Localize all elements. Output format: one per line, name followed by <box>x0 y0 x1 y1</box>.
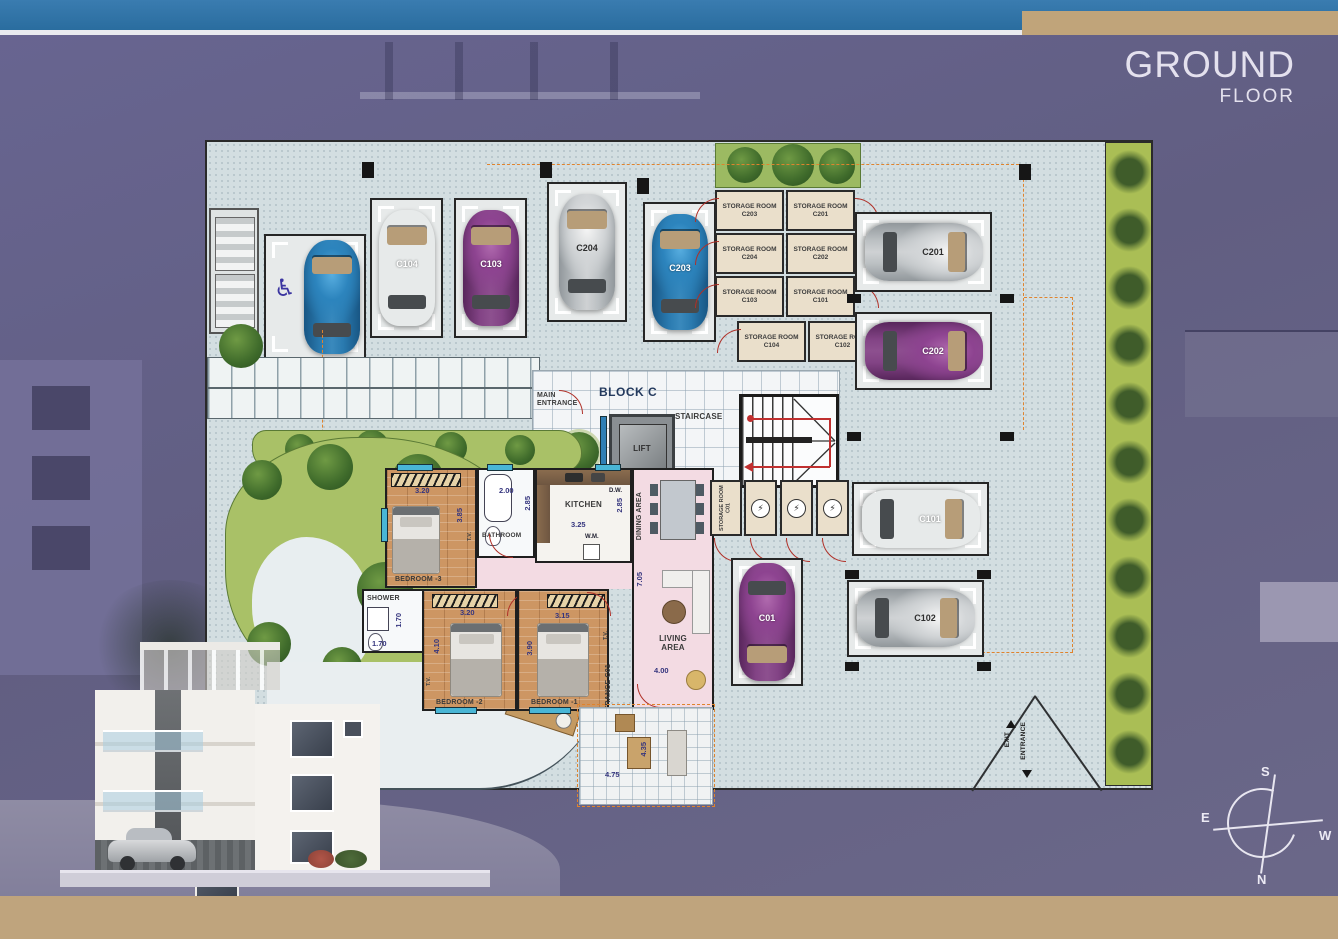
parked-car <box>108 828 196 872</box>
window-dark <box>290 774 334 812</box>
room-label: DINING AREA <box>636 492 650 540</box>
handicap-icon: ♿ <box>274 274 296 303</box>
bg-pergola-post <box>385 42 393 100</box>
staircase-label: STAIRCASE <box>675 412 722 421</box>
bg-pergola-post <box>455 42 463 100</box>
closet <box>391 473 461 487</box>
stove <box>591 473 605 482</box>
chair <box>696 503 704 515</box>
car-c102: C102 <box>857 589 975 647</box>
tree <box>307 444 353 490</box>
car-accessible <box>304 240 360 354</box>
dim-label: 3.20 <box>415 486 430 495</box>
electric-icon: ⚡ <box>751 499 770 518</box>
lift-label: LIFT <box>612 444 672 453</box>
room-label: KITCHEN <box>565 500 602 509</box>
penthouse-pergola <box>140 642 280 650</box>
garden-strip-right <box>1105 142 1152 786</box>
bg-window <box>32 386 90 430</box>
boundary-dashed <box>1072 297 1073 652</box>
outdoor-sofa <box>667 730 687 776</box>
bg-pergola-post <box>610 42 618 100</box>
bottom-tan-bar <box>0 896 1338 939</box>
tree <box>219 324 263 368</box>
penthouse-deck <box>140 650 280 690</box>
compass-n: N <box>1257 872 1266 887</box>
exit-label: EXIT <box>1004 732 1011 747</box>
car-c101: C101 <box>862 490 980 548</box>
compass-s: S <box>1261 764 1270 779</box>
chair <box>696 484 704 496</box>
wall-jamb <box>362 162 374 178</box>
dining-table <box>660 480 696 540</box>
electric-icon: ⚡ <box>787 499 806 518</box>
boundary-dashed <box>1024 297 1073 298</box>
bed <box>537 623 589 697</box>
red-bush <box>308 850 334 868</box>
room-label: LIVING AREA <box>648 634 698 652</box>
wall-jamb <box>845 570 859 579</box>
window <box>595 464 621 471</box>
kitchen-counter <box>537 470 630 485</box>
floor-subtitle: FLOOR <box>1035 86 1295 108</box>
car-wheel <box>170 856 185 871</box>
balcony-glass <box>103 730 203 752</box>
compass: S E W N <box>1205 772 1335 887</box>
electric-meter-room: ⚡ <box>780 480 813 536</box>
bed <box>392 506 440 574</box>
tree <box>505 435 535 465</box>
stair-path <box>750 418 830 420</box>
dim-label: 2.85 <box>615 498 624 513</box>
walkway <box>207 357 540 388</box>
stair-path <box>829 418 831 467</box>
dining-area: DINING AREA <box>634 470 712 562</box>
storage-room-c01: STORAGE ROOM C01 <box>710 480 742 536</box>
facade-panel <box>155 690 181 840</box>
kitchen-counter <box>537 485 550 543</box>
bin <box>215 274 255 328</box>
exit-arrow-icon <box>1006 720 1016 728</box>
washing-machine <box>583 544 600 560</box>
dim-label: 2.85 <box>523 496 532 511</box>
stair-path-dot <box>747 415 754 422</box>
wall-jamb <box>977 662 991 671</box>
window <box>397 464 433 471</box>
room-kitchen: D.W. KITCHEN 2.85 3.25 W.M. <box>535 468 632 563</box>
bin <box>215 217 255 271</box>
room-label: BEDROOM -1 <box>531 699 578 706</box>
electric-meter-room: ⚡ <box>744 480 777 536</box>
wall-jamb <box>1000 432 1014 441</box>
road-front <box>60 870 490 887</box>
wall-jamb <box>1019 164 1031 180</box>
building-photo <box>60 612 490 884</box>
compass-e: E <box>1201 810 1210 825</box>
top-tan-bar <box>1022 11 1338 35</box>
green-bush <box>335 850 367 868</box>
sink <box>565 473 583 482</box>
ground-floor-title: GROUND <box>1035 46 1295 83</box>
wall-jamb <box>637 178 649 194</box>
tv-label: T.V. <box>467 532 473 541</box>
window-small <box>343 720 363 738</box>
car-c104: C104 <box>379 210 435 326</box>
dim-label: 4.35 <box>639 742 648 757</box>
balcony-glass <box>103 790 203 812</box>
room-bedroom-3: 3.20 3.85 T.V. BEDROOM -3 <box>385 468 477 588</box>
chair <box>696 522 704 534</box>
window-dark <box>290 720 334 758</box>
room-label: BEDROOM -3 <box>395 576 442 583</box>
page-title: GROUND FLOOR <box>1035 46 1295 108</box>
chair <box>650 522 658 534</box>
dim-label: 3.15 <box>555 611 570 620</box>
bg-house-right <box>1260 582 1338 642</box>
bg-window <box>32 456 90 500</box>
tree <box>242 460 282 500</box>
wall-jamb <box>845 662 859 671</box>
door-arc <box>822 538 846 562</box>
chair <box>650 503 658 515</box>
dim-label: 3.85 <box>455 508 464 523</box>
chair <box>650 484 658 496</box>
stair-path-arrow <box>744 462 753 472</box>
dw-label: D.W. <box>609 488 622 494</box>
dim-label: 3.90 <box>525 641 534 656</box>
closet <box>432 594 498 608</box>
wall-jamb <box>847 432 861 441</box>
bg-block-right <box>1185 332 1338 417</box>
dim-label: 4.00 <box>654 666 669 675</box>
sofa <box>692 570 710 634</box>
walkway <box>207 388 540 419</box>
stair-path <box>752 466 830 468</box>
bins-unit <box>209 208 259 334</box>
block-label: BLOCK C <box>599 385 657 399</box>
road-marking <box>1034 695 1102 791</box>
wall-jamb <box>977 570 991 579</box>
compass-arc <box>1215 776 1308 869</box>
electric-meter-room: ⚡ <box>816 480 849 536</box>
bathtub <box>484 474 512 522</box>
dim-label: 2.00 <box>499 486 514 495</box>
dim-label: 4.75 <box>605 770 620 779</box>
room-label: SHOWER <box>367 595 400 602</box>
wall-jamb <box>847 294 861 303</box>
tv-label: T.V. <box>603 631 609 640</box>
dim-label: 3.25 <box>571 520 586 529</box>
outdoor-chair <box>615 714 635 732</box>
coffee-table <box>662 600 686 624</box>
entrance-arrow-icon <box>1022 770 1032 778</box>
electric-icon: ⚡ <box>823 499 842 518</box>
car-wheel <box>120 856 135 871</box>
wm-label: W.M. <box>585 534 599 540</box>
window <box>529 707 571 714</box>
entrance-label: ENTRANCE <box>1020 722 1027 760</box>
window <box>381 508 388 542</box>
wall-jamb <box>1000 294 1014 303</box>
boundary-dashed <box>977 652 1073 653</box>
armchair <box>686 670 706 690</box>
staircase <box>739 394 839 488</box>
bg-pergola-post <box>530 42 538 100</box>
compass-w: W <box>1319 828 1331 843</box>
stair-landing-rail <box>746 437 812 443</box>
bg-window <box>32 526 90 570</box>
wall-jamb <box>540 162 552 178</box>
window <box>487 464 513 471</box>
car-c01: C01 <box>739 563 795 681</box>
